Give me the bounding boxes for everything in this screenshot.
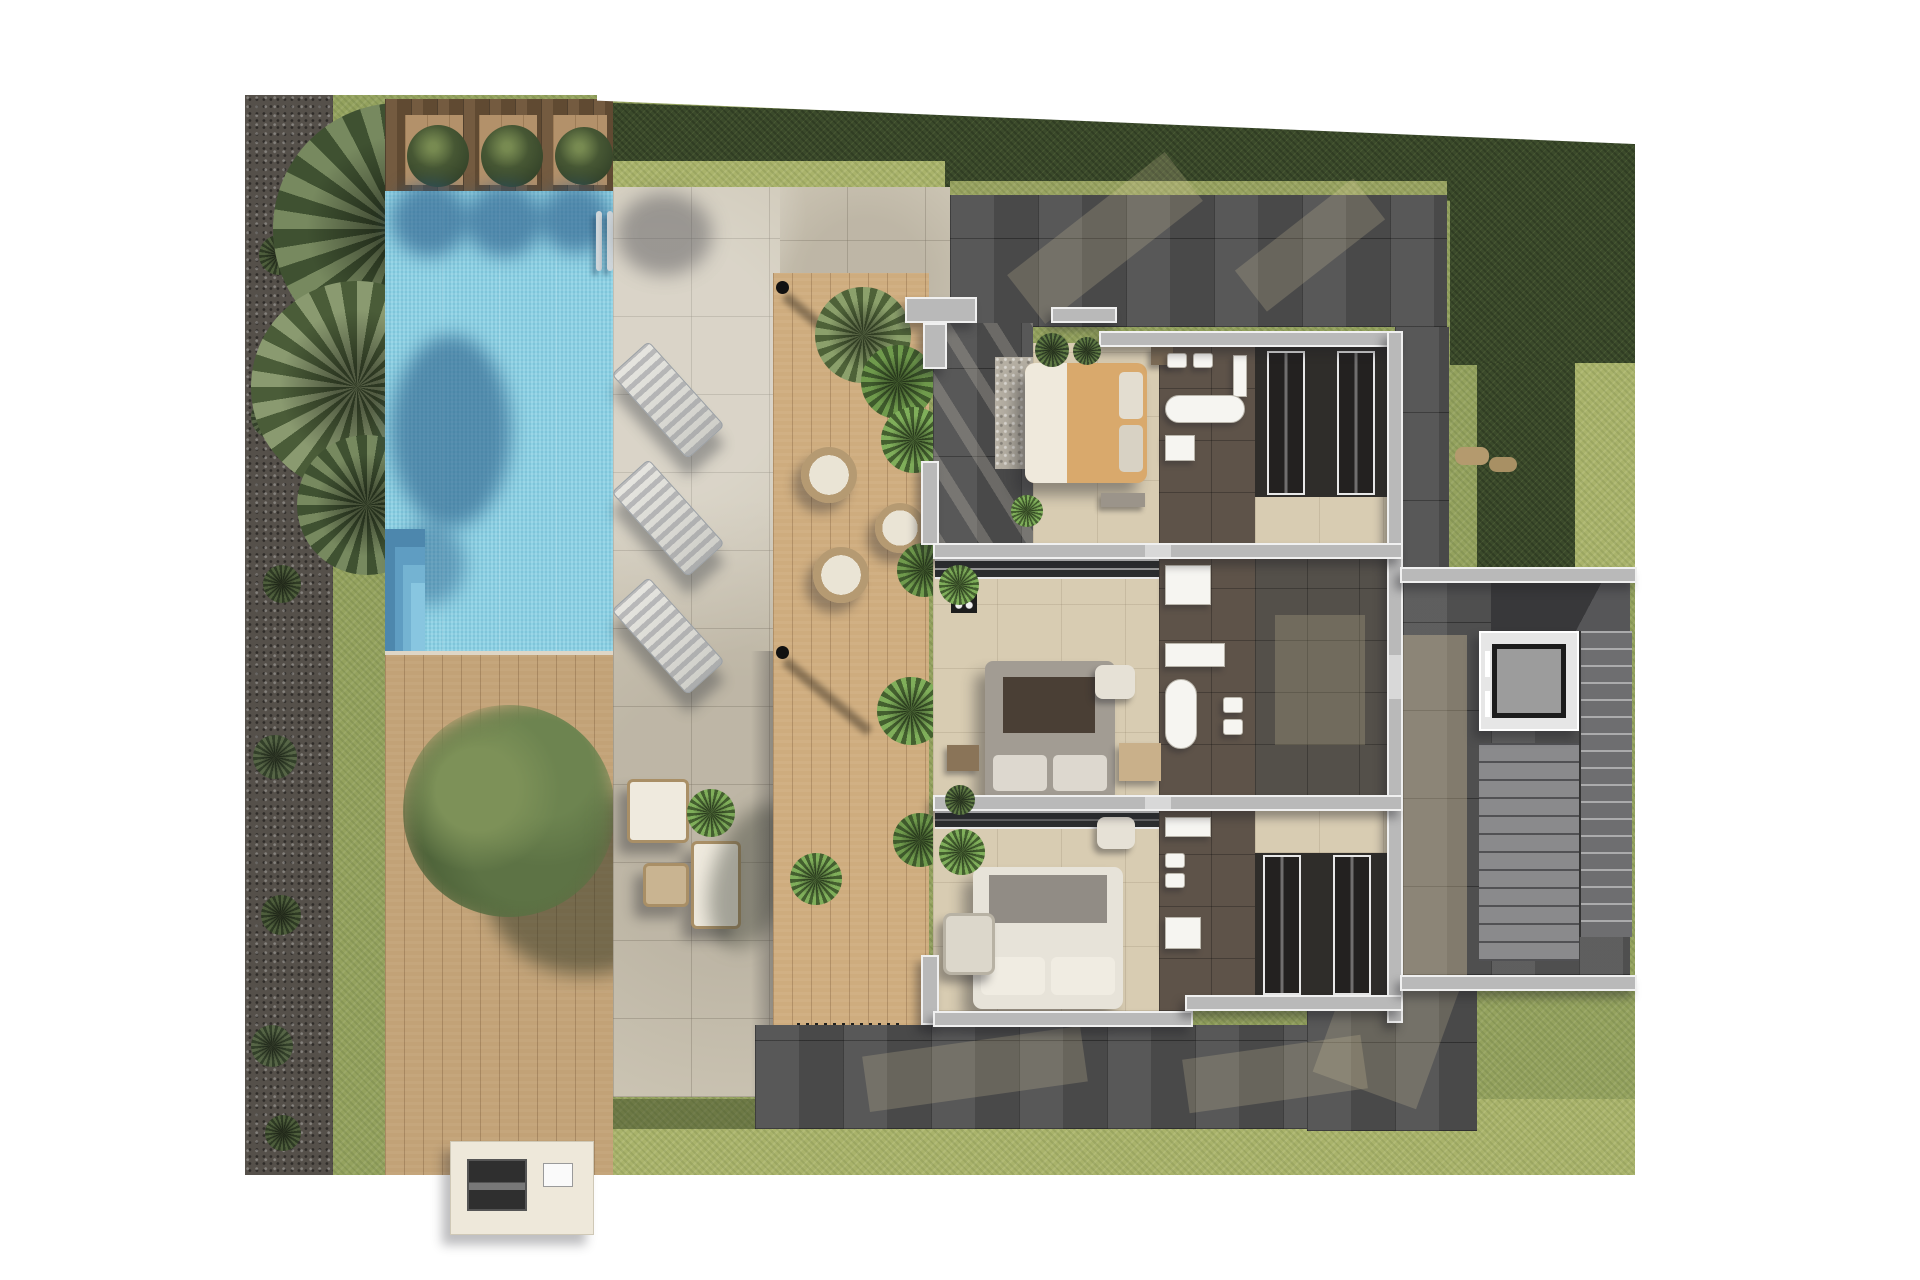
villa-plan (245, 95, 1635, 1245)
outdoor-armchair (627, 779, 689, 843)
shower-tray-icon (1165, 435, 1195, 461)
pool-step (411, 583, 425, 655)
bed-lower-blanket (989, 875, 1107, 923)
toilet-icon (1165, 853, 1185, 868)
bench (1101, 493, 1145, 507)
bed-guest-throw (1003, 677, 1095, 733)
shrub-icon (261, 895, 301, 935)
bathroom3-floor (1159, 809, 1255, 1011)
walk-in-closet-unit (1263, 855, 1301, 995)
potted-plant-icon (1011, 495, 1043, 527)
elevator-door-mark (1485, 691, 1490, 717)
wall (1400, 567, 1637, 583)
boxwood-ball-icon (407, 125, 469, 187)
wall (1185, 995, 1403, 1011)
planter-greenery-icon (1073, 337, 1101, 365)
outdoor-ottoman (643, 863, 689, 907)
toilet-icon (1167, 353, 1187, 368)
bush-shadow-on-water (391, 183, 469, 257)
sun-patch (1403, 635, 1467, 975)
toilet-icon (1223, 697, 1243, 713)
wall (1099, 331, 1401, 347)
wall (921, 461, 939, 545)
wardrobe-unit (1267, 351, 1305, 495)
side-table (1119, 743, 1161, 781)
potted-plant-icon (687, 789, 735, 837)
potted-plant-icon (939, 565, 979, 605)
potted-plant-icon (939, 829, 985, 875)
boxwood-ball-icon (481, 125, 543, 187)
staircase-flight (1579, 631, 1632, 937)
pillow-icon (1051, 957, 1115, 995)
shower-tray-icon (1165, 917, 1201, 949)
right-lawn (1575, 363, 1635, 575)
planter-greenery-icon (945, 785, 975, 815)
staircase-flight (1479, 743, 1579, 961)
right-hedge-corner (1450, 125, 1635, 365)
shower-tray-icon (1165, 565, 1211, 605)
wardrobe-unit (1337, 351, 1375, 495)
rendered-floorplan-page (0, 0, 1920, 1280)
wall (923, 323, 947, 369)
outdoor-sink-icon (543, 1163, 573, 1187)
vanity-sink-icon (1165, 817, 1211, 837)
pool-ladder-icon (596, 211, 602, 271)
elevator-car (1492, 644, 1566, 718)
closet-area-north-floor (1255, 809, 1391, 853)
rattan-chair (801, 447, 857, 503)
sun-patch (1275, 615, 1365, 745)
palm-shadow-on-patio (617, 193, 712, 275)
bidet-icon (1165, 873, 1185, 888)
vanity-sink-icon (1233, 355, 1247, 397)
wall (905, 297, 977, 323)
bbq-grill-icon (467, 1159, 527, 1211)
wardrobe-room-south-floor (1255, 497, 1391, 545)
bed-master-sheet (1025, 363, 1067, 483)
nightstand (947, 745, 979, 771)
walk-in-closet-unit (1333, 855, 1371, 995)
shrub-icon (263, 565, 301, 603)
armchair (943, 913, 995, 975)
palm-shadow-on-water (391, 335, 511, 527)
flagstone (1455, 447, 1489, 465)
bathtub-icon (1165, 679, 1197, 749)
bidet-icon (1223, 719, 1243, 735)
shrub-icon (265, 1115, 301, 1151)
potted-plant-icon (790, 853, 842, 905)
shade-tree-icon (403, 705, 615, 917)
door-opening (1145, 797, 1171, 809)
shrub-icon (251, 1025, 293, 1067)
vanity-sink-icon (1165, 643, 1225, 667)
flagstone (1489, 457, 1517, 472)
east-terrace-pavers (1395, 327, 1449, 589)
wall (1051, 307, 1117, 323)
shrub-icon (253, 735, 297, 779)
pillow-icon (1119, 425, 1143, 472)
door-opening (1145, 545, 1171, 557)
bidet-icon (1193, 353, 1213, 368)
pouf (1097, 817, 1135, 849)
pillow-icon (1119, 372, 1143, 419)
planter-greenery-icon (1035, 333, 1069, 367)
bush-shadow-on-water (465, 185, 543, 257)
wall (933, 1011, 1193, 1027)
pillow-icon (993, 755, 1047, 791)
pouf (1095, 665, 1135, 699)
wall (1400, 975, 1637, 991)
boxwood-ball-icon (555, 127, 613, 185)
bathtub-icon (1165, 395, 1245, 423)
rattan-chair (813, 547, 869, 603)
elevator-door-mark (1485, 651, 1490, 677)
pillow-icon (1053, 755, 1107, 791)
door-opening (1389, 655, 1401, 699)
